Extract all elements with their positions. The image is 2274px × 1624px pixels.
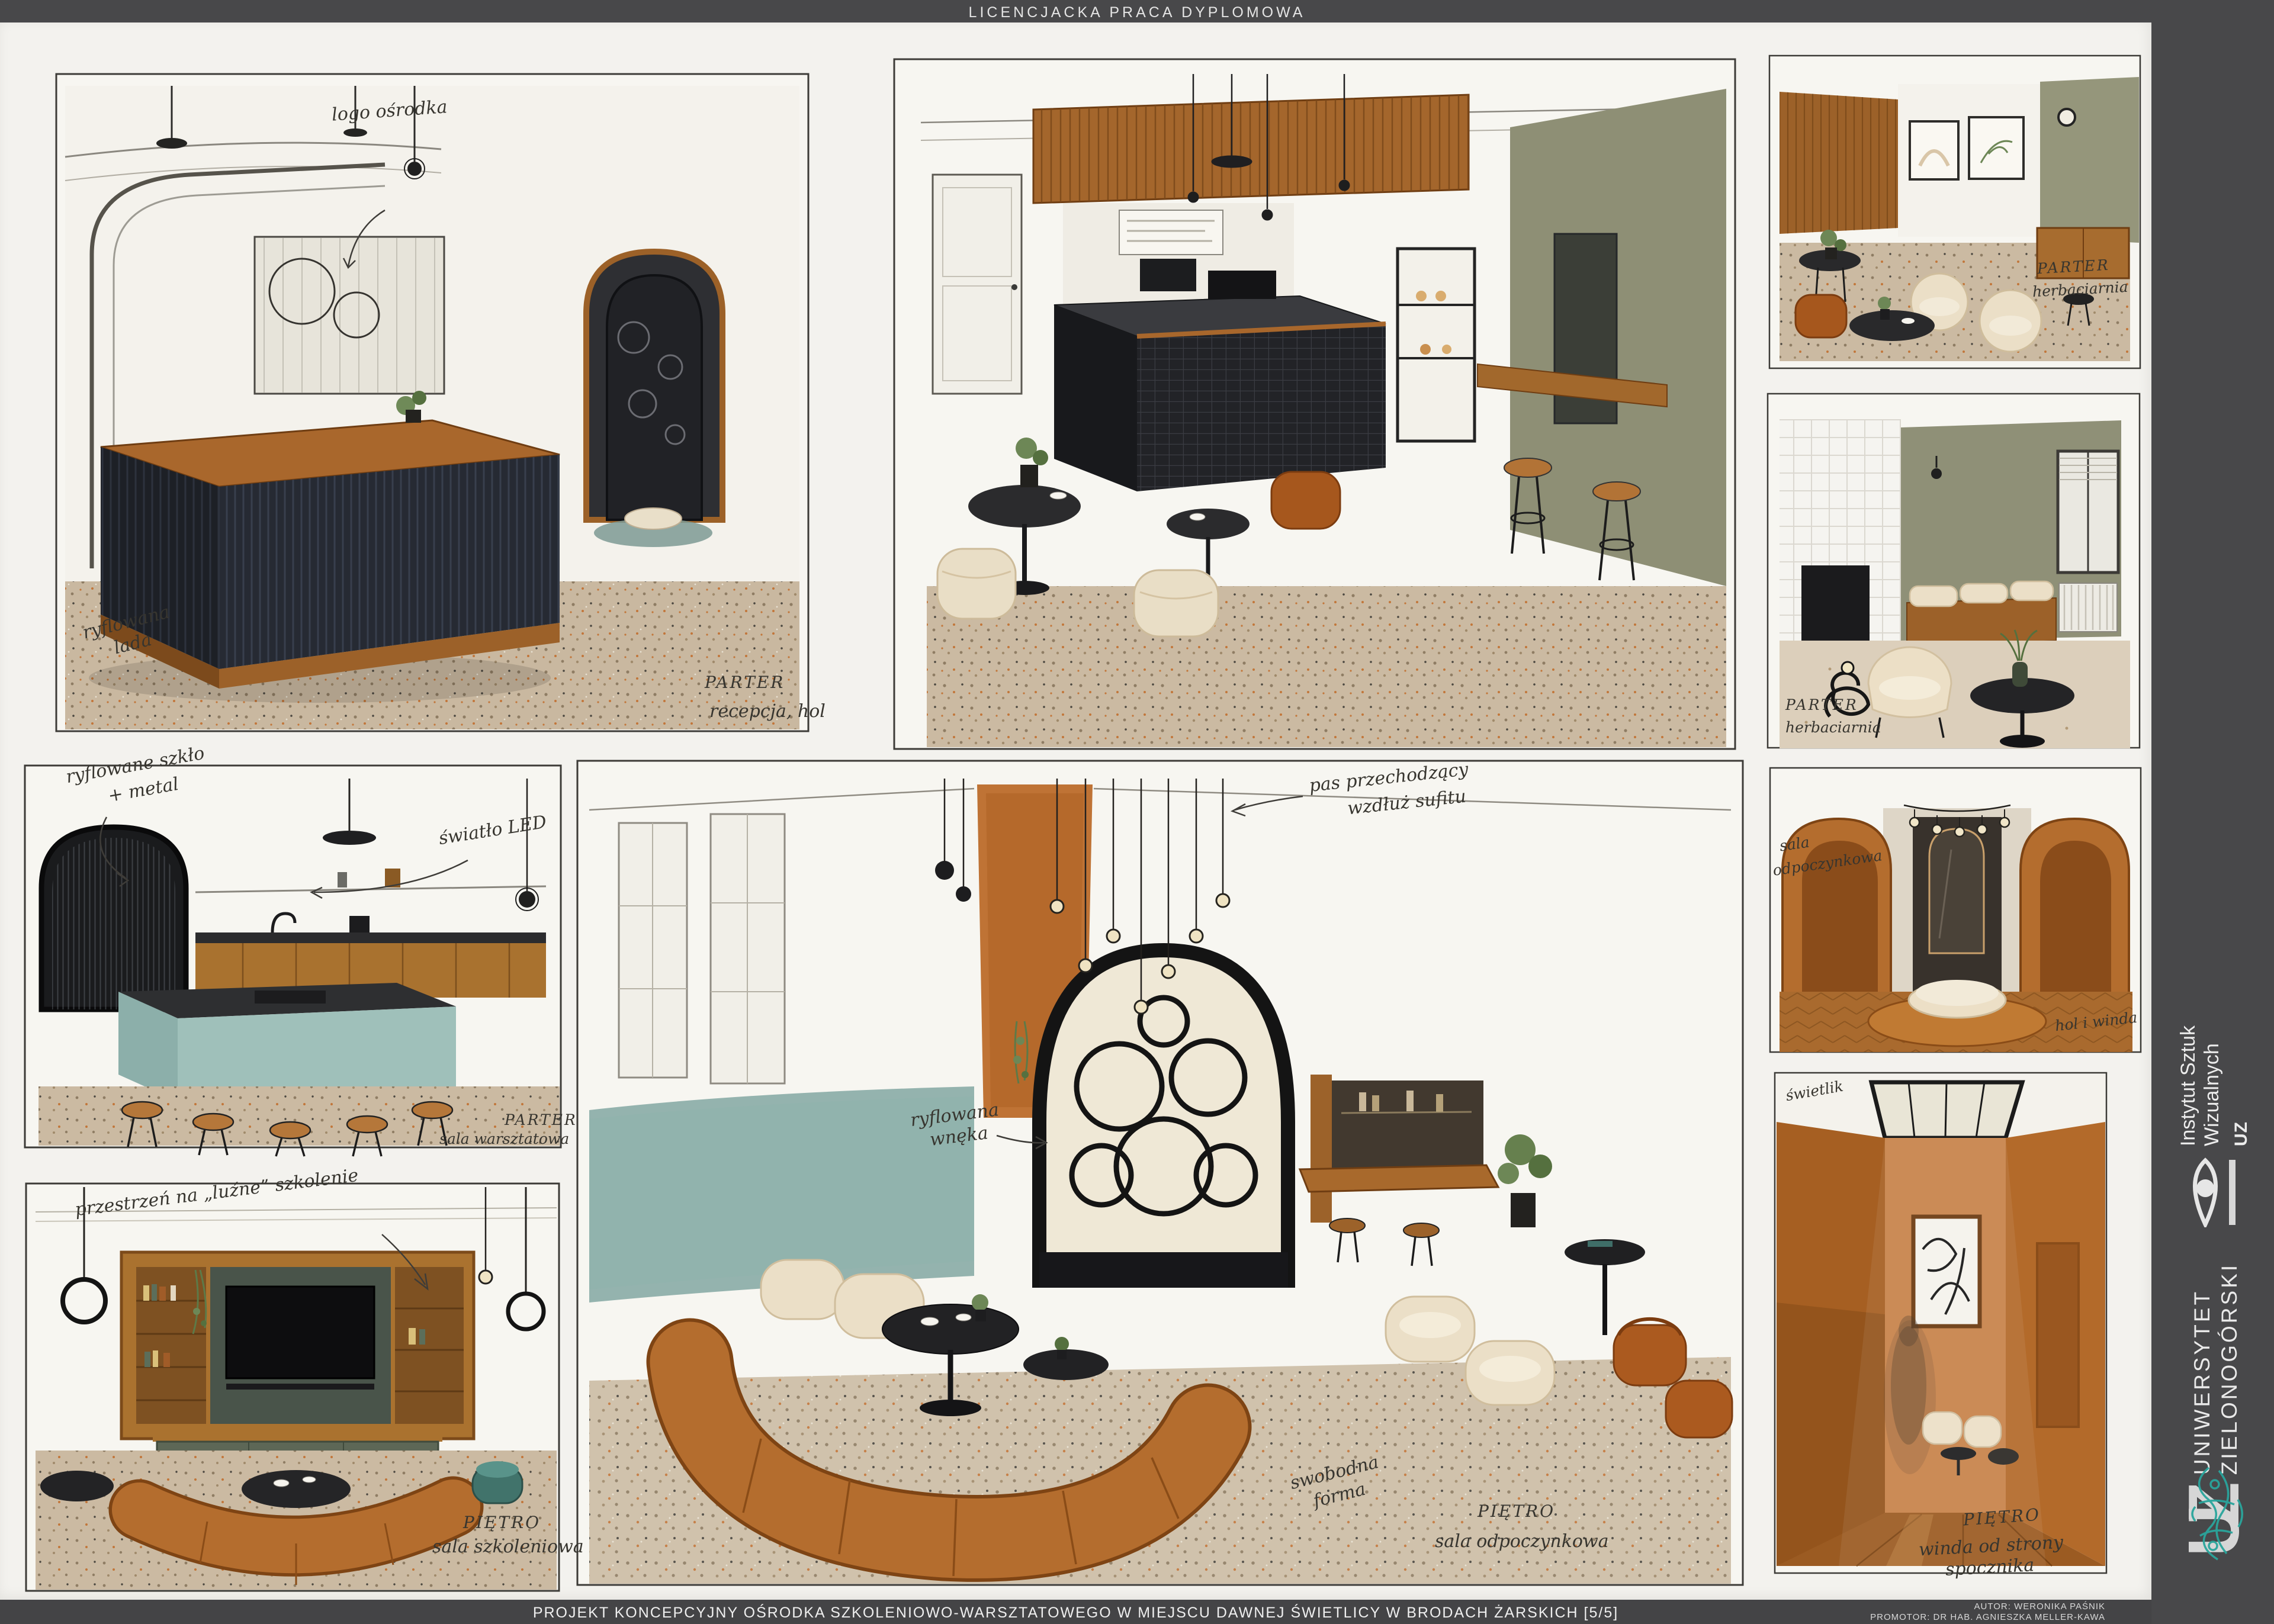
right-arch — [2021, 819, 2129, 1012]
bench — [1907, 581, 2056, 648]
fluted-glass-arch — [41, 827, 186, 1009]
caption-room: sala odpoczynkowa — [1435, 1532, 1609, 1551]
arch-window — [1039, 950, 1288, 1288]
tiled-wall — [1780, 419, 1901, 647]
caption-floor: PARTER — [705, 674, 785, 691]
green-wall — [2040, 77, 2139, 243]
wall-lamp — [2058, 109, 2075, 126]
panel-training-room: przestrzeń na „luźne” szkolenie PIĘTRO s… — [18, 1175, 568, 1599]
radiator — [2059, 583, 2117, 632]
caption-room: sala szkoleniowa — [432, 1538, 584, 1557]
caption-room: recepcja, hol — [709, 702, 826, 721]
university-line2: ZIELONOGÓRSKI — [2216, 1263, 2243, 1475]
panel-workshop-kitchen: ryflowane szkło + metal światło LED PART… — [18, 755, 568, 1157]
pastry-shelf — [1398, 249, 1475, 441]
poster-header-title: LICENCJACKA PRACA DYPLOMOWA — [0, 4, 2274, 21]
institute-line2: Wizualnych — [2200, 1025, 2224, 1146]
window — [2058, 451, 2118, 573]
center-recess — [1913, 817, 2002, 992]
teal-pouf — [473, 1461, 522, 1503]
caption-floor: PARTER — [2037, 258, 2110, 277]
institute-eye-icon — [2189, 1157, 2239, 1227]
panel-upper-hall: sala odpoczynkowa hol i winda — [1762, 761, 2150, 1060]
entrance-door — [933, 175, 1022, 394]
ottoman — [1909, 980, 2006, 1018]
caption-floor: PIĘTRO — [463, 1514, 541, 1531]
caption-room: sala warsztatowa — [439, 1131, 569, 1147]
promoter-line: PROMOTOR: DR HAB. AGNIESZKA MELLER-KAWA — [1870, 1612, 2105, 1623]
training-room-sketch — [18, 1175, 568, 1599]
institute-abbr: UZ — [2230, 1025, 2253, 1146]
green-wall — [1510, 89, 1726, 586]
black-ottoman — [40, 1471, 114, 1501]
tearoom-sketch — [1759, 47, 2150, 379]
author-line: AUTOR: WERONIKA PAŚNIK — [1870, 1602, 2105, 1612]
caption-room-2: spocznika — [1945, 1556, 2035, 1579]
uz-griffin-ornament-icon — [2182, 1459, 2250, 1568]
caption-room: herbaciarnia — [1785, 720, 1881, 735]
institute-bar-mark — [2229, 1160, 2236, 1225]
island — [118, 983, 456, 1101]
top-bar: LICENCJACKA PRACA DYPLOMOWA — [0, 0, 2274, 22]
cafe-sketch — [885, 50, 1744, 761]
wood-bulkhead — [1033, 95, 1469, 203]
workshop-kitchen-sketch — [18, 755, 568, 1157]
university-block: UNIWERSYTET ZIELONOGÓRSKI — [2189, 1263, 2243, 1475]
caption-floor: PIĘTRO — [1478, 1503, 1555, 1520]
panel-tearoom-detail: PARTER herbaciarnia — [1759, 385, 2150, 758]
institute-line1: Instytut Sztuk — [2176, 1025, 2200, 1146]
presentation-board: logo ośrodka ryflowana lada PARTER recep… — [0, 0, 2274, 1624]
panel-reception: logo ośrodka ryflowana lada PARTER recep… — [24, 59, 841, 746]
uz-logo: UZ — [2177, 1461, 2254, 1561]
credits-block: AUTOR: WERONIKA PAŚNIK PROMOTOR: DR HAB.… — [1870, 1602, 2105, 1623]
university-line1: UNIWERSYTET — [2189, 1263, 2216, 1475]
panel-rest-hall: pas przechodzący wzdłuż sufitu ryflowana… — [566, 752, 1756, 1596]
terrazzo-floor — [927, 586, 1726, 747]
institute-block: Instytut Sztuk Wizualnych UZ — [2176, 1025, 2253, 1146]
project-title: PROJEKT KONCEPCYJNY OŚRODKA SZKOLENIOWO-… — [0, 1604, 2151, 1622]
arched-doorway — [586, 252, 722, 547]
sidebar: Instytut Sztuk Wizualnych UZ UNIWERSYTET… — [2151, 0, 2274, 1624]
skylight — [1871, 1082, 2022, 1138]
fireplace — [1801, 565, 1870, 641]
coffee-table — [242, 1470, 351, 1508]
caption-floor: PARTER — [1785, 697, 1858, 713]
panel-cafe — [885, 50, 1744, 761]
lift-corridor-sketch — [1768, 1066, 2114, 1587]
panel-tearoom: PARTER herbaciarnia — [1759, 47, 2150, 379]
orange-pouf — [1796, 295, 1846, 337]
media-wall — [121, 1252, 474, 1439]
rest-hall-sketch — [566, 752, 1756, 1596]
panel-lift-corridor: świetlik PIĘTRO winda od strony spocznik… — [1768, 1066, 2114, 1587]
